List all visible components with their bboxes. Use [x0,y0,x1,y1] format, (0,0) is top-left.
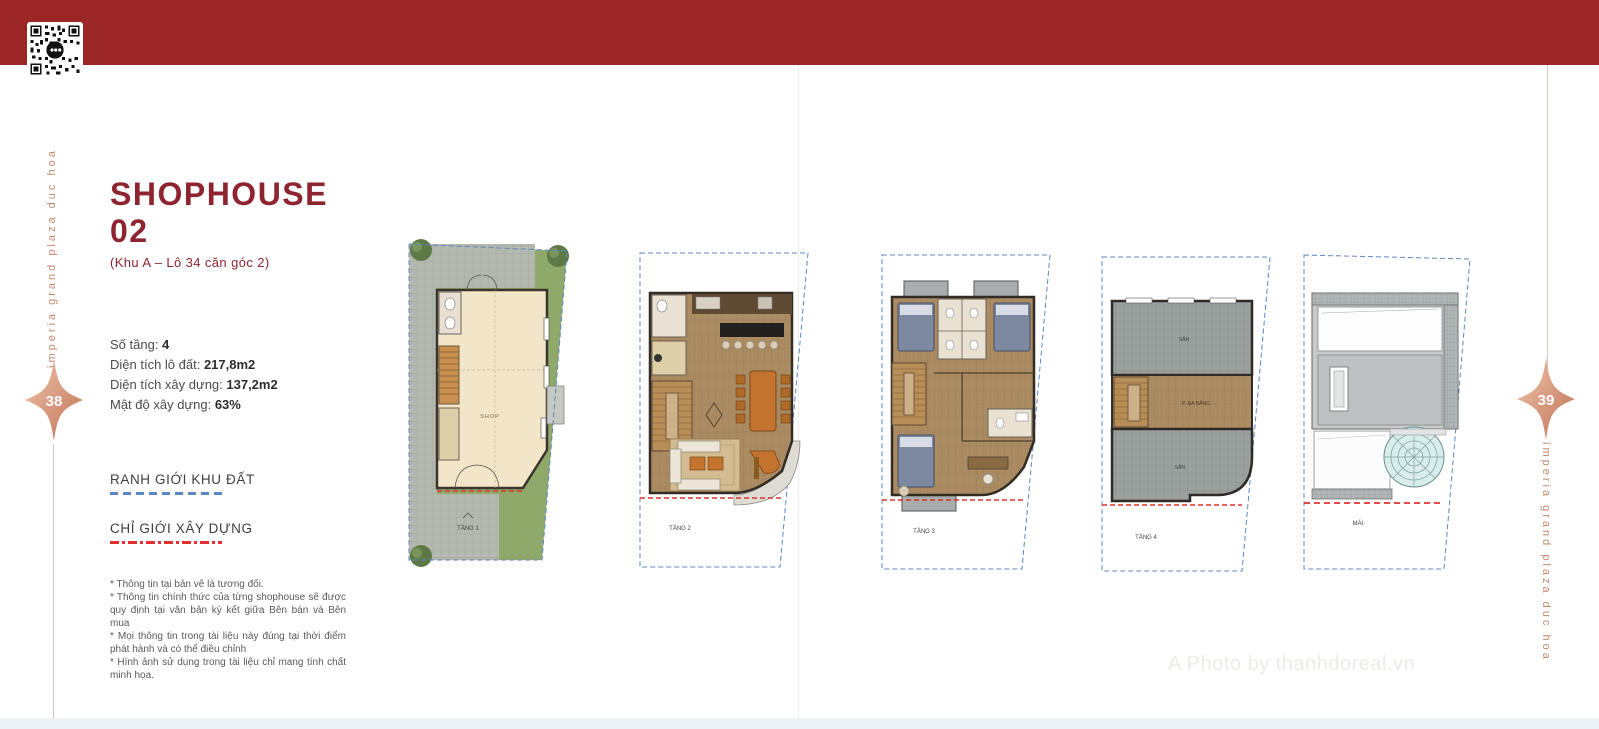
plan-label-tang-3: TẦNG 3 [913,528,935,535]
spec-label: Mật độ xây dựng: [110,397,215,412]
footnote: * Thông tin tại bản vẽ là tương đối. [110,578,346,591]
side-brand-text-left: imperia grand plaza duc hoa [46,128,58,368]
spec-row-lot-area: Diện tích lô đất: 217,8m2 [110,355,278,375]
qr-code [27,22,83,78]
spec-list: Số tầng: 4 Diện tích lô đất: 217,8m2 Diệ… [110,335,278,415]
red-dash-dot-line [110,541,222,544]
plan-label-tang-1: TẦNG 1 [457,525,479,532]
floor-plan-mai: MÁI [1292,243,1482,578]
floor-plan-tang-1: SHOP TẦNG 1 [393,238,583,573]
legend: RANH GIỚI KHU ĐẤT CHỈ GIỚI XÂY DỰNG [110,472,255,570]
dome-skylight-icon [1384,427,1444,487]
legend-item-plot-boundary: RANH GIỚI KHU ĐẤT [110,472,255,495]
plan-label-tang-4: TẦNG 4 [1135,534,1157,541]
spec-row-density: Mật độ xây dựng: 63% [110,395,278,415]
room-label-shop: SHOP [480,414,500,420]
side-brand-text-right: imperia grand plaza duc hoa [1540,442,1552,722]
bottom-strip [0,718,1599,729]
plan-label-mai: MÁI [1353,520,1364,527]
floor-plan-tang-4: SÂN P. ĐA NĂNG SÂN TẦNG 4 [1092,243,1282,578]
footnote: * Hình ảnh sử dụng trong tài liệu chỉ ma… [110,656,346,682]
spec-row-built-area: Diện tích xây dựng: 137,2m2 [110,375,278,395]
top-banner [0,0,1599,65]
footnote: * Thông tin chính thức của từng shophous… [110,591,346,630]
page-title-number: 02 [110,213,328,250]
qr-code-icon [29,24,81,76]
page-number-star-right: 39 [1517,358,1575,440]
watermark-text: A Photo by thanhdoreal.vn [1168,653,1415,676]
page-subtitle: (Khu A – Lô 34 căn góc 2) [110,255,328,270]
title-block: SHOPHOUSE 02 (Khu A – Lô 34 căn góc 2) [110,176,328,270]
brochure-spread: imperia grand plaza duc hoa imperia gran… [0,0,1599,729]
left-margin-rule [53,444,54,729]
legend-label: RANH GIỚI KHU ĐẤT [110,472,255,487]
right-margin-rule [1547,65,1548,372]
floor-plan-tang-2: TẦNG 2 [632,243,822,578]
footnote: * Mọi thông tin trong tài liệu này đúng … [110,630,346,656]
page-number-right: 39 [1538,392,1555,409]
legend-label: CHỈ GIỚI XÂY DỰNG [110,521,255,536]
plan-label-tang-2: TẦNG 2 [669,525,691,532]
blue-dashed-line [110,492,222,495]
spec-value: 217,8m2 [204,357,255,372]
spec-value: 63% [215,397,241,412]
spec-label: Diện tích lô đất: [110,357,204,372]
legend-item-building-line: CHỈ GIỚI XÂY DỰNG [110,521,255,544]
room-label-san-bottom: SÂN [1175,464,1186,471]
spec-value: 137,2m2 [226,377,277,392]
page-number-star-left: 38 [25,359,83,441]
spec-row-floors: Số tầng: 4 [110,335,278,355]
spec-label: Diện tích xây dựng: [110,377,226,392]
spec-value: 4 [162,337,169,352]
spec-label: Số tầng: [110,337,162,352]
footnotes: * Thông tin tại bản vẽ là tương đối. * T… [110,578,346,682]
room-label-san-top: SÂN [1179,336,1190,343]
page-title: SHOPHOUSE [110,176,328,213]
floor-plan-tang-3: TẦNG 3 [872,243,1062,578]
room-label-da-nang: P. ĐA NĂNG [1182,400,1210,407]
page-number-left: 38 [46,393,63,410]
